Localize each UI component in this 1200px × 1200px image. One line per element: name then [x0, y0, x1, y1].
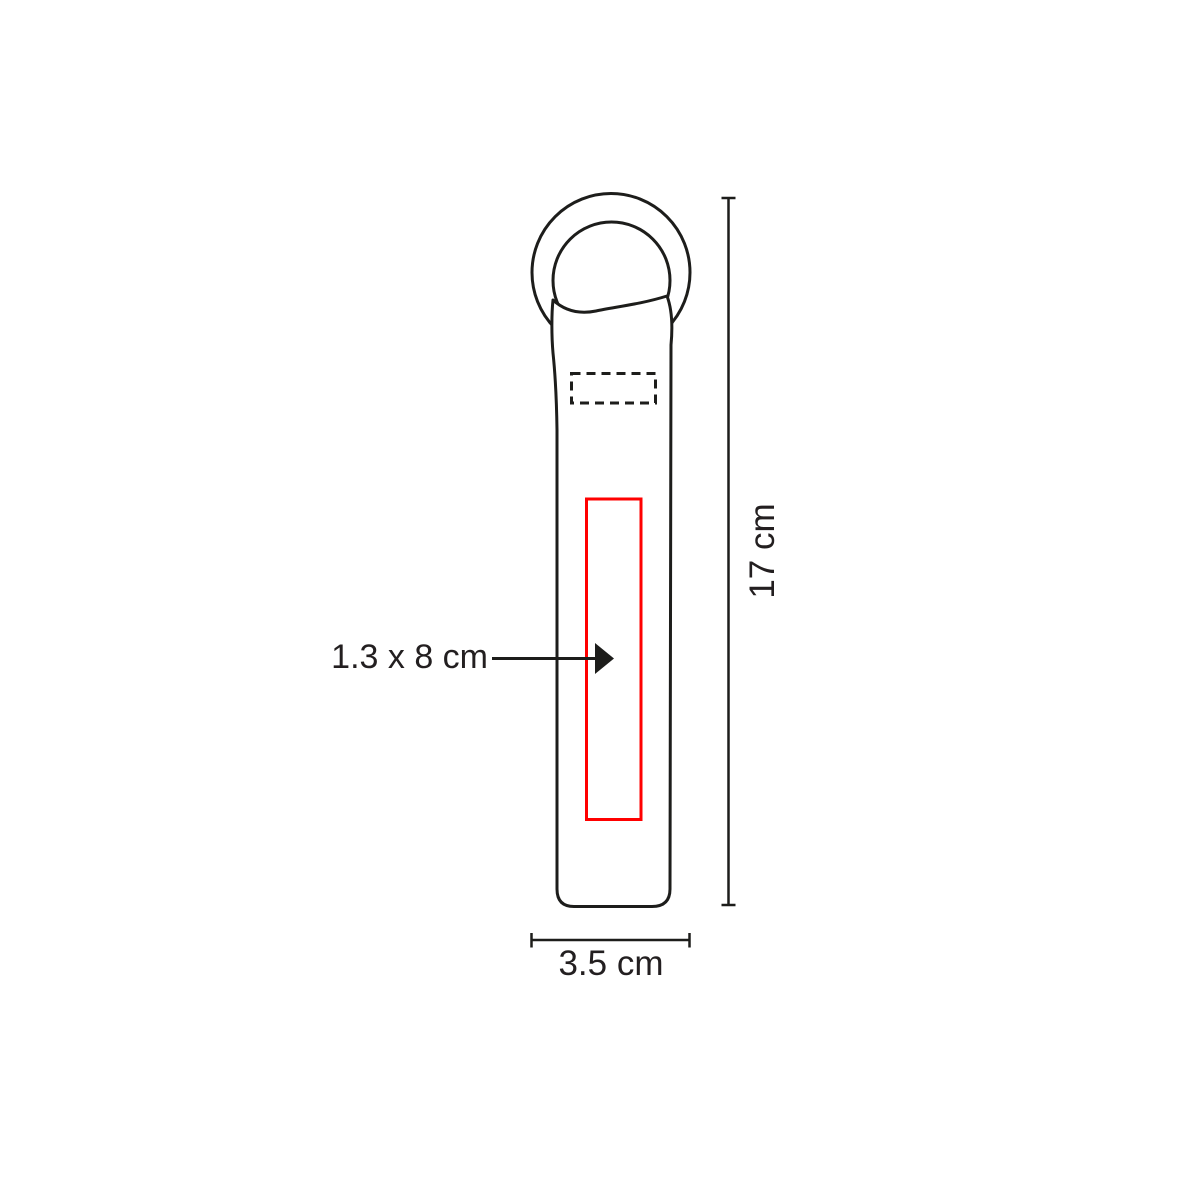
- height-dimension-line: [722, 198, 736, 905]
- strap-body-outline: [552, 296, 672, 907]
- width-label: 3.5 cm: [511, 944, 711, 984]
- imprint-size-label: 1.3 x 8 cm: [318, 637, 488, 677]
- keyring-strap-drawing: [0, 0, 1200, 1200]
- product-dimension-diagram: 1.3 x 8 cm 17 cm 3.5 cm: [0, 0, 1200, 1200]
- imprint-arrow: [492, 643, 614, 674]
- height-label: 17 cm: [743, 491, 783, 611]
